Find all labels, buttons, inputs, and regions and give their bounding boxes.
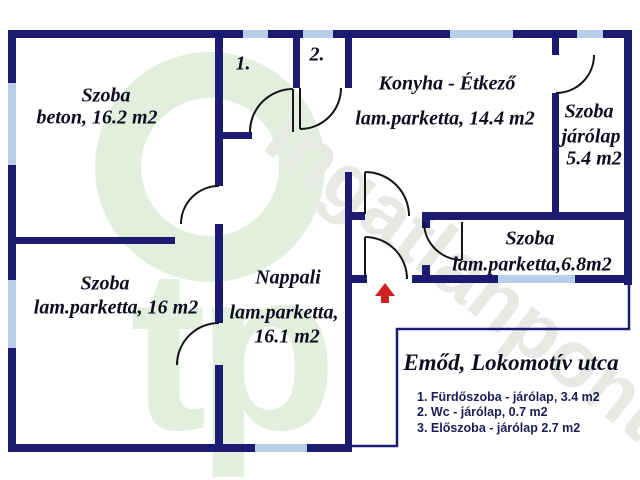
- legend-item: 2. Wc - járólap, 0.7 m2: [417, 405, 548, 419]
- room-label: 5.4 m2: [566, 148, 622, 171]
- labels-layer: Szoba beton, 16.2 m2 1. 2. Konyha - Étke…: [0, 0, 640, 480]
- room-label: lam.parketta, 16 m2: [34, 297, 198, 320]
- room-number-label: 1.: [236, 53, 251, 76]
- room-label: beton, 16.2 m2: [36, 107, 157, 130]
- room-label: lam.parketta,: [230, 302, 339, 325]
- room-label: Szoba: [81, 273, 130, 296]
- legend-item: 1. Fürdőszoba - járólap, 3.4 m2: [417, 390, 600, 404]
- room-label: 16.1 m2: [254, 326, 320, 349]
- address-title: Emőd, Lokomotív utca: [403, 350, 618, 376]
- room-label: lam.parketta,6.8m2: [452, 254, 611, 277]
- room-label: Szoba: [82, 85, 131, 108]
- room-label: Szoba: [506, 228, 555, 251]
- room-label: Szoba: [565, 101, 614, 124]
- floor-plan: tp Ingatlanpont: [0, 0, 640, 480]
- room-label: járólap: [562, 126, 621, 149]
- legend-item: 3. Előszoba - járólap 2.7 m2: [417, 421, 580, 435]
- room-label: lam.parketta, 14.4 m2: [355, 108, 534, 131]
- room-label: Konyha - Étkező: [379, 73, 516, 96]
- room-label: Nappali: [255, 267, 321, 290]
- room-number-label: 2.: [310, 44, 325, 67]
